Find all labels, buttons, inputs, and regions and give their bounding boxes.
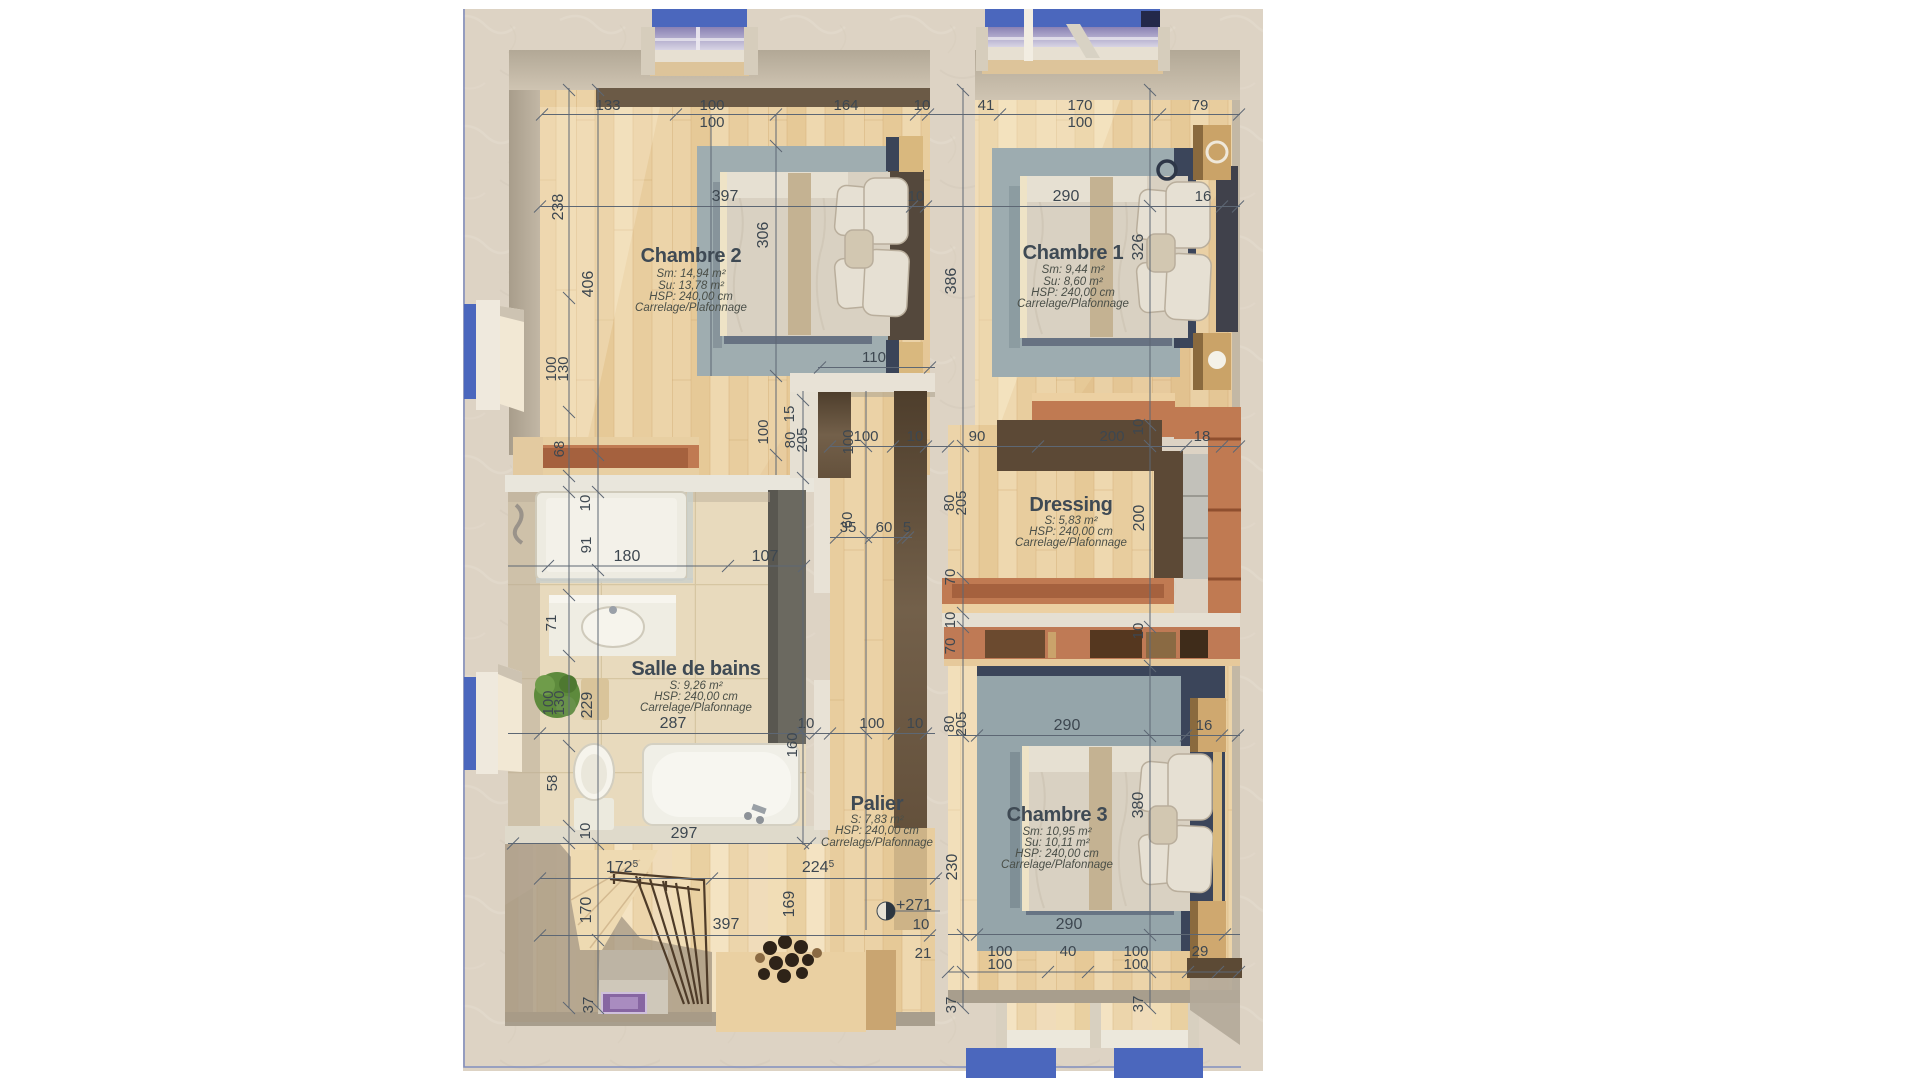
- svg-text:180: 180: [614, 548, 641, 565]
- svg-text:Carrelage/Plafonnage: Carrelage/Plafonnage: [640, 702, 752, 714]
- svg-text:58: 58: [544, 775, 561, 792]
- svg-text:290: 290: [1056, 916, 1083, 933]
- svg-text:130: 130: [555, 356, 572, 381]
- svg-text:21: 21: [915, 945, 932, 962]
- svg-text:107: 107: [752, 548, 779, 565]
- svg-text:290: 290: [1054, 717, 1081, 734]
- svg-text:169: 169: [781, 891, 798, 918]
- svg-text:170: 170: [578, 897, 595, 924]
- svg-text:10: 10: [1130, 623, 1147, 640]
- svg-text:10: 10: [577, 495, 594, 512]
- svg-text:Dressing: Dressing: [1029, 494, 1112, 516]
- svg-text:110: 110: [862, 349, 886, 366]
- svg-text:205: 205: [953, 490, 970, 515]
- svg-text:10: 10: [798, 715, 815, 732]
- svg-text:160: 160: [784, 732, 801, 757]
- svg-text:10: 10: [913, 916, 930, 933]
- svg-text:100: 100: [699, 114, 724, 131]
- svg-text:100: 100: [859, 715, 884, 732]
- svg-text:164: 164: [833, 97, 858, 114]
- svg-text:10: 10: [907, 428, 924, 445]
- svg-text:70: 70: [942, 638, 959, 655]
- svg-text:380: 380: [1130, 792, 1147, 819]
- svg-text:Salle de bains: Salle de bains: [631, 658, 760, 680]
- svg-text:200: 200: [1131, 505, 1148, 532]
- svg-text:60: 60: [839, 512, 856, 529]
- svg-text:Carrelage/Plafonnage: Carrelage/Plafonnage: [635, 302, 747, 314]
- svg-text:200: 200: [1099, 428, 1124, 445]
- svg-text:HSP: 240,00 cm: HSP: 240,00 cm: [835, 825, 919, 837]
- svg-text:Chambre 1: Chambre 1: [1023, 242, 1124, 264]
- svg-text:10: 10: [908, 188, 925, 205]
- svg-text:133: 133: [595, 97, 620, 114]
- svg-text:70: 70: [942, 569, 959, 586]
- svg-text:386: 386: [943, 268, 960, 295]
- svg-text:Carrelage/Plafonnage: Carrelage/Plafonnage: [1001, 859, 1113, 871]
- svg-text:326: 326: [1130, 234, 1147, 261]
- svg-text:91: 91: [578, 537, 595, 554]
- svg-text:230: 230: [944, 854, 961, 881]
- svg-text:287: 287: [660, 715, 687, 732]
- svg-text:10: 10: [942, 612, 959, 629]
- svg-text:397: 397: [713, 916, 740, 933]
- svg-text:Carrelage/Plafonnage: Carrelage/Plafonnage: [1015, 537, 1127, 549]
- svg-text:90: 90: [969, 428, 986, 445]
- svg-text:406: 406: [580, 271, 597, 298]
- svg-text:100: 100: [840, 429, 857, 454]
- svg-text:130: 130: [551, 690, 568, 715]
- svg-text:37: 37: [580, 997, 597, 1014]
- svg-text:29: 29: [1192, 943, 1209, 960]
- svg-text:5: 5: [903, 519, 911, 536]
- svg-text:60: 60: [876, 519, 893, 536]
- svg-text:100: 100: [987, 956, 1012, 973]
- svg-text:100: 100: [1067, 114, 1092, 131]
- svg-text:15: 15: [781, 406, 798, 423]
- svg-text:40: 40: [1060, 943, 1077, 960]
- svg-text:Carrelage/Plafonnage: Carrelage/Plafonnage: [821, 837, 933, 849]
- svg-text:238: 238: [550, 194, 567, 221]
- svg-text:205: 205: [794, 427, 811, 452]
- svg-text:229: 229: [579, 692, 596, 719]
- svg-text:Chambre 3: Chambre 3: [1007, 804, 1108, 826]
- svg-text:Sm: 14,94 m²: Sm: 14,94 m²: [656, 268, 726, 280]
- svg-text:10: 10: [907, 715, 924, 732]
- svg-text:10: 10: [1130, 419, 1147, 436]
- svg-text:10: 10: [914, 97, 931, 114]
- svg-text:100: 100: [699, 97, 724, 114]
- svg-text:297: 297: [671, 825, 698, 842]
- svg-text:10: 10: [577, 823, 594, 840]
- svg-text:37: 37: [943, 997, 960, 1014]
- svg-text:18: 18: [1194, 428, 1211, 445]
- svg-text:16: 16: [1196, 717, 1213, 734]
- svg-text:205: 205: [953, 711, 970, 736]
- svg-text:71: 71: [543, 615, 560, 632]
- svg-text:37: 37: [1130, 996, 1147, 1013]
- svg-text:68: 68: [551, 441, 568, 458]
- svg-text:397: 397: [712, 188, 739, 205]
- svg-text:41: 41: [978, 97, 995, 114]
- svg-text:16: 16: [1195, 188, 1212, 205]
- svg-text:Chambre 2: Chambre 2: [641, 245, 742, 267]
- svg-text:306: 306: [755, 222, 772, 249]
- svg-text:Sm: 9,44 m²: Sm: 9,44 m²: [1042, 264, 1106, 276]
- svg-text:79: 79: [1192, 97, 1209, 114]
- svg-text:Palier: Palier: [851, 793, 904, 815]
- svg-text:Carrelage/Plafonnage: Carrelage/Plafonnage: [1017, 298, 1129, 310]
- svg-text:290: 290: [1053, 188, 1080, 205]
- svg-text:100: 100: [755, 419, 772, 444]
- svg-text:100: 100: [1123, 956, 1148, 973]
- svg-text:170: 170: [1067, 97, 1092, 114]
